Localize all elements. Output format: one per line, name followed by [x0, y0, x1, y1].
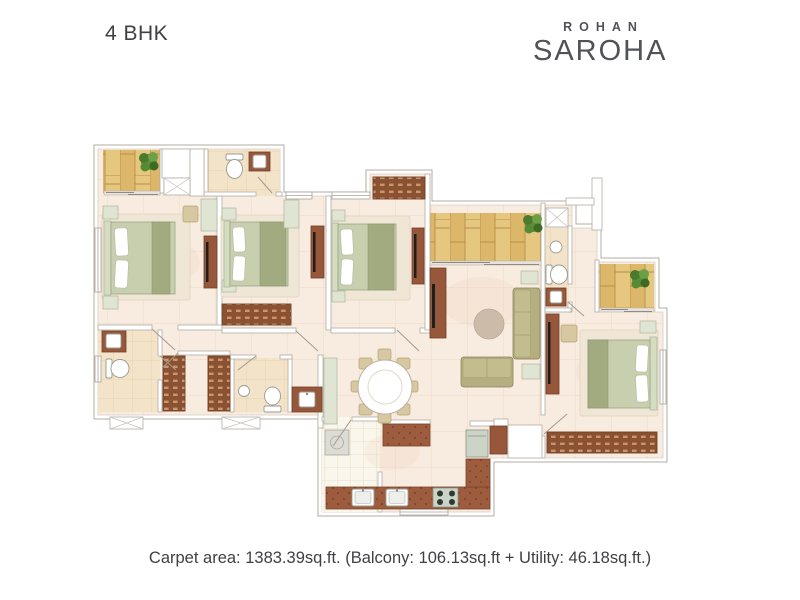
double-bed-icon [104, 221, 175, 295]
bathroom-mid-floor [234, 358, 288, 412]
plant-icon [630, 269, 650, 289]
floor-plan [0, 0, 800, 600]
round-rug-icon [474, 309, 504, 339]
tv-unit-icon [204, 236, 217, 288]
floorplan-page: { "header": { "title": "4 BHK" }, "brand… [0, 0, 800, 600]
dining-table-icon [351, 349, 418, 423]
nightstand [332, 210, 345, 221]
toilet-icon [264, 387, 281, 412]
kitchen-sink-icon [386, 489, 408, 506]
washing-machine-icon [325, 430, 349, 455]
wardrobe-icon [208, 356, 230, 411]
vanity-icon [546, 288, 566, 306]
toilet-icon [226, 154, 243, 179]
double-bed-icon [224, 221, 288, 287]
nightstand [103, 206, 118, 219]
kitchen-counter [466, 459, 490, 487]
tv-unit-icon [546, 314, 559, 394]
sofa-icon [461, 357, 513, 387]
side-table-icon [521, 271, 538, 284]
utility-sink-icon [352, 489, 374, 506]
nightstand [640, 321, 656, 333]
washbasin-icon [102, 331, 126, 352]
cabinet-icon [490, 426, 507, 454]
double-bed-icon [332, 223, 396, 291]
fridge-icon [466, 430, 488, 457]
dresser [201, 199, 217, 231]
washbasin-icon [239, 386, 250, 397]
plant-icon [139, 152, 159, 172]
stove-icon [433, 488, 458, 507]
sofa-icon [513, 288, 540, 359]
double-bed-icon [588, 337, 657, 410]
side-table-icon [522, 364, 540, 379]
tv-unit-icon [412, 228, 424, 284]
chair-icon [561, 325, 577, 342]
dresser [284, 200, 299, 228]
washbasin-icon [249, 152, 270, 171]
wardrobe-icon [373, 177, 425, 199]
chair-icon [183, 206, 198, 222]
tv-unit-icon [311, 226, 324, 278]
toilet-icon [106, 359, 129, 378]
wardrobe-icon [547, 432, 657, 453]
kitchen-counter [383, 424, 430, 446]
toilet-icon [546, 265, 568, 284]
nightstand [103, 296, 118, 309]
wardrobe-icon [222, 304, 291, 325]
carpet-area-caption: Carpet area: 1383.39sq.ft. (Balcony: 106… [0, 549, 800, 568]
nightstand [332, 291, 345, 302]
plant-icon [523, 214, 543, 234]
nightstand [222, 208, 236, 220]
washbasin-icon [550, 241, 562, 253]
crockery-cabinet [324, 358, 337, 424]
powder-washbasin [292, 387, 322, 412]
